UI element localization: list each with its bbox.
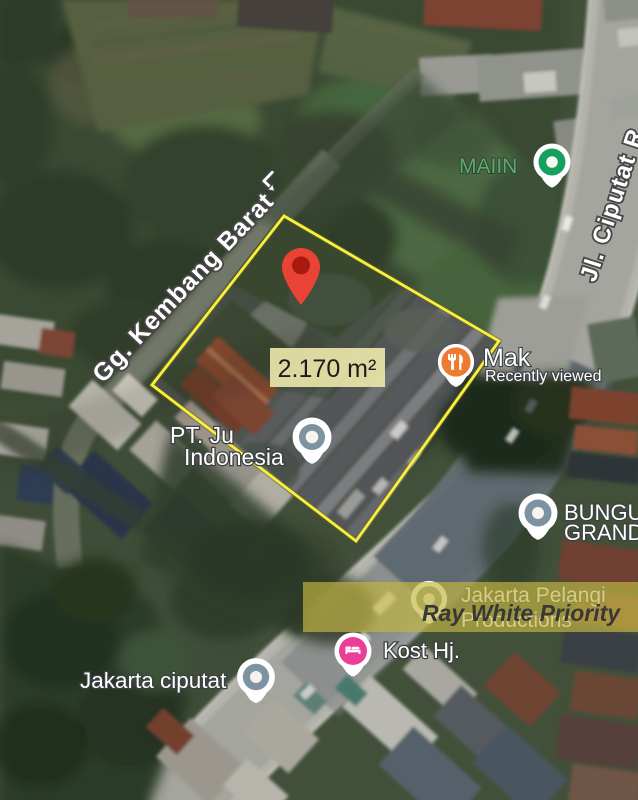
svg-text:GRAND: GRAND bbox=[564, 520, 638, 545]
svg-text:Recently viewed: Recently viewed bbox=[485, 368, 602, 385]
svg-text:Ray White Priority: Ray White Priority bbox=[422, 600, 621, 626]
svg-text:Kost Hj.: Kost Hj. bbox=[383, 638, 460, 663]
svg-text:2.170 m²: 2.170 m² bbox=[278, 355, 377, 383]
svg-text:Jakarta ciputat: Jakarta ciputat bbox=[80, 668, 227, 693]
svg-text:MAIIN: MAIIN bbox=[459, 155, 517, 178]
svg-text:Indonesia: Indonesia bbox=[184, 444, 284, 470]
